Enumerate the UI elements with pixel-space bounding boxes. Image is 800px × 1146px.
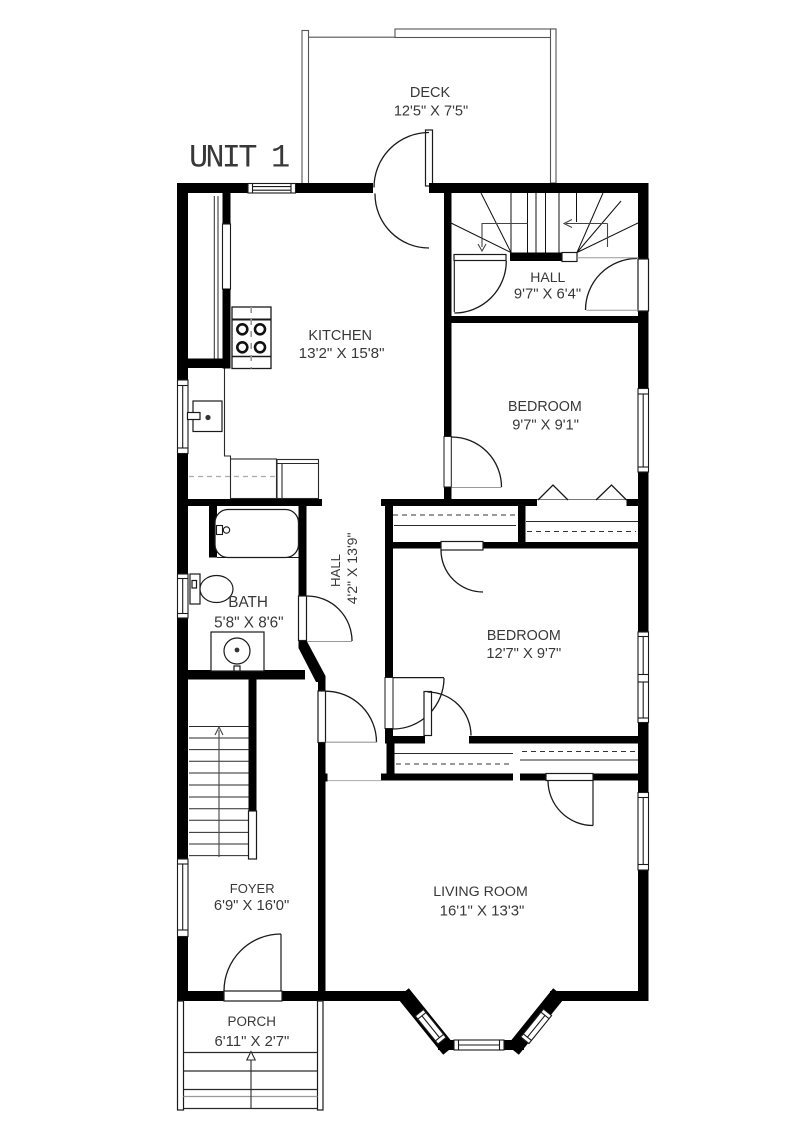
svg-text:HALL: HALL (328, 554, 343, 587)
svg-text:BEDROOM: BEDROOM (508, 399, 582, 415)
svg-text:13'2" X 15'8": 13'2" X 15'8" (299, 345, 385, 362)
svg-text:9'7" X 6'4": 9'7" X 6'4" (514, 287, 581, 303)
svg-text:5'8" X 8'6": 5'8" X 8'6" (214, 615, 283, 632)
svg-text:9'7" X 9'1": 9'7" X 9'1" (512, 418, 579, 434)
svg-text:PORCH: PORCH (228, 1014, 276, 1029)
svg-text:DECK: DECK (410, 85, 451, 101)
svg-text:6'11" X 2'7": 6'11" X 2'7" (215, 1034, 290, 1050)
svg-text:6'9" X 16'0": 6'9" X 16'0" (214, 898, 289, 914)
svg-text:FOYER: FOYER (230, 881, 275, 896)
svg-text:KITCHEN: KITCHEN (308, 328, 372, 344)
svg-text:UNIT 1: UNIT 1 (189, 140, 289, 177)
svg-text:BEDROOM: BEDROOM (487, 628, 561, 644)
svg-text:HALL: HALL (530, 269, 565, 285)
svg-text:4'2" X 13'9": 4'2" X 13'9" (344, 532, 360, 604)
svg-text:12'5" X 7'5": 12'5" X 7'5" (394, 104, 468, 120)
svg-text:LIVING ROOM: LIVING ROOM (433, 884, 528, 900)
svg-text:BATH: BATH (228, 594, 268, 611)
svg-text:16'1" X 13'3": 16'1" X 13'3" (440, 903, 525, 920)
svg-text:12'7" X 9'7": 12'7" X 9'7" (486, 646, 561, 662)
